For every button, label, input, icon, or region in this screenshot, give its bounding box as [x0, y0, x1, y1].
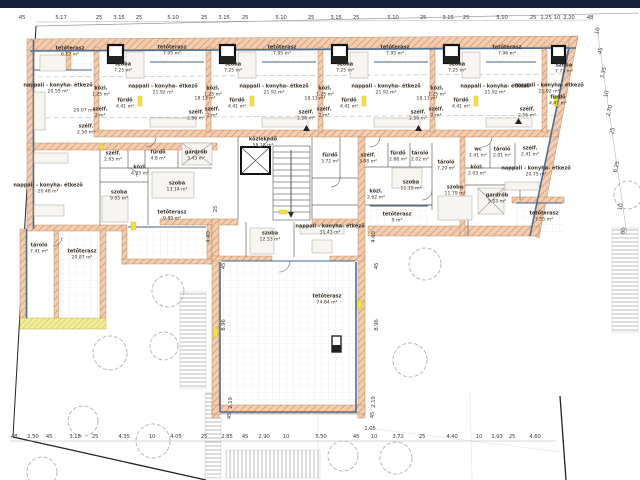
eaves-lines [30, 74, 572, 118]
floor-plan-canvas: tetőterasz 6.12 m² nappali - konyha- étk… [0, 0, 640, 480]
plan-drawing [0, 0, 640, 480]
